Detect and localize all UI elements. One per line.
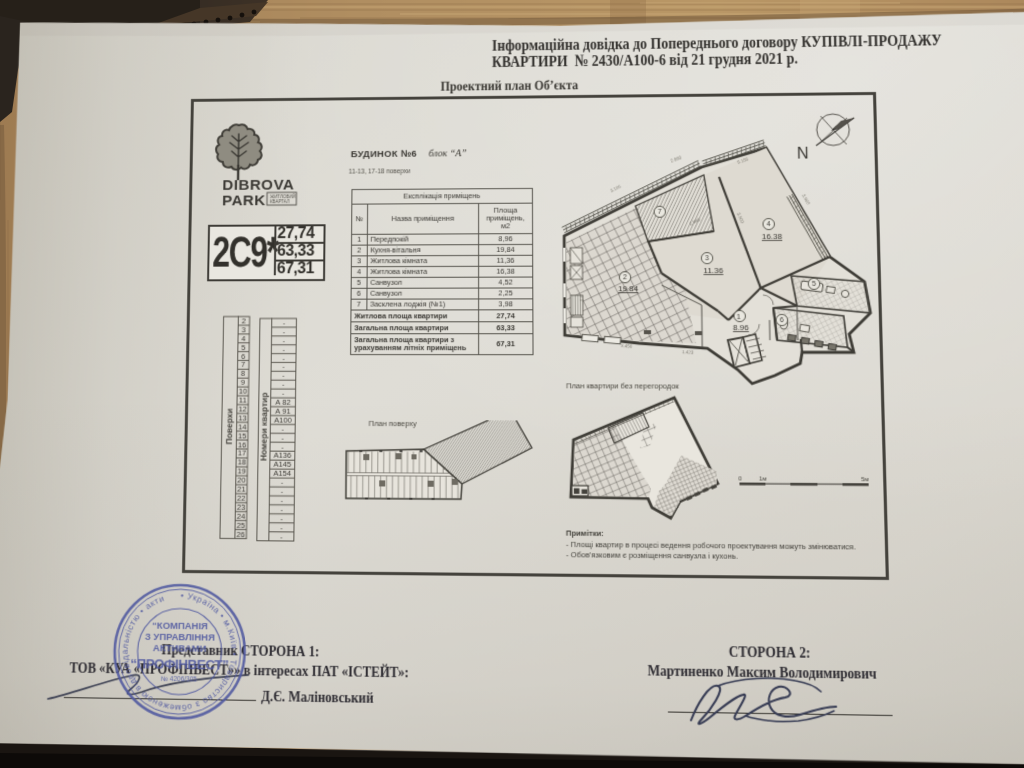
svg-text:3.960: 3.960 [801, 193, 812, 206]
svg-text:-: - [283, 319, 286, 327]
svg-text:4: 4 [767, 221, 771, 228]
svg-text:-: - [282, 345, 285, 353]
svg-text:1.423: 1.423 [682, 349, 694, 355]
svg-text:-: - [283, 337, 286, 345]
svg-text:16: 16 [238, 441, 247, 450]
svg-text:19: 19 [237, 467, 246, 476]
svg-text:“ПРОФІНВЕСТ”: “ПРОФІНВЕСТ” [130, 656, 228, 673]
svg-text:8.96: 8.96 [733, 323, 749, 333]
svg-text:№ 4206/305: № 4206/305 [161, 676, 198, 684]
svg-text:PARK: PARK [222, 193, 266, 208]
svg-text:-: - [282, 372, 285, 380]
svg-text:0: 0 [738, 476, 742, 483]
svg-text:А154: А154 [273, 470, 291, 479]
svg-text:-: - [282, 363, 285, 371]
svg-text:А 82: А 82 [275, 398, 291, 407]
svg-text:4: 4 [241, 335, 245, 343]
svg-text:7: 7 [658, 209, 662, 216]
svg-text:16.38: 16.38 [762, 232, 783, 242]
svg-text:-: - [282, 381, 285, 389]
svg-text:-: - [283, 328, 286, 336]
svg-text:-: - [281, 434, 284, 443]
svg-text:23: 23 [237, 503, 246, 512]
svg-text:“КОМПАНІЯ: “КОМПАНІЯ [152, 620, 208, 632]
svg-text:-: - [280, 533, 283, 542]
svg-text:-: - [281, 425, 284, 434]
svg-text:КВАРТАЛ: КВАРТАЛ [270, 199, 290, 204]
svg-text:-: - [280, 524, 283, 533]
svg-text:1м: 1м [759, 476, 767, 483]
svg-text:11.36: 11.36 [703, 266, 723, 276]
svg-text:3.450: 3.450 [621, 343, 633, 349]
svg-text:N: N [797, 145, 809, 163]
svg-text:-: - [280, 515, 283, 524]
svg-text:З УПРАВЛІННЯ: З УПРАВЛІННЯ [145, 631, 215, 643]
svg-text:20: 20 [237, 476, 246, 485]
svg-text:АКТИВАМИ: АКТИВАМИ [153, 642, 207, 654]
svg-text:17: 17 [238, 450, 247, 459]
svg-text:Номери квартир: Номери квартир [259, 392, 269, 461]
svg-text:6: 6 [241, 352, 245, 360]
svg-text:А 91: А 91 [275, 407, 291, 416]
svg-text:3: 3 [705, 255, 709, 262]
svg-text:2: 2 [623, 274, 627, 281]
svg-text:А136: А136 [274, 452, 292, 461]
svg-text:6: 6 [780, 317, 785, 325]
svg-text:-: - [282, 354, 285, 362]
svg-text:1: 1 [737, 314, 741, 321]
svg-text:-: - [281, 443, 284, 452]
svg-text:-: - [281, 488, 284, 497]
svg-text:18: 18 [237, 458, 246, 467]
svg-text:-: - [282, 390, 285, 398]
svg-text:15: 15 [238, 432, 247, 441]
svg-text:14: 14 [238, 423, 247, 432]
svg-text:7: 7 [241, 361, 245, 369]
svg-text:2: 2 [242, 317, 246, 325]
svg-text:10: 10 [239, 387, 248, 395]
svg-text:5: 5 [241, 343, 245, 351]
svg-text:21: 21 [237, 485, 246, 494]
svg-text:DIBROVA: DIBROVA [222, 177, 294, 194]
svg-text:8: 8 [241, 370, 245, 378]
svg-text:12: 12 [238, 405, 247, 414]
svg-text:5м: 5м [861, 477, 869, 484]
svg-text:19.84: 19.84 [618, 284, 638, 294]
svg-text:13: 13 [238, 414, 247, 423]
svg-text:2.980: 2.980 [670, 154, 683, 163]
svg-text:24: 24 [237, 512, 246, 521]
svg-text:-: - [281, 479, 284, 488]
svg-text:9: 9 [241, 379, 245, 387]
svg-text:11: 11 [239, 396, 247, 404]
svg-text:-: - [281, 497, 284, 506]
svg-text:-: - [280, 506, 283, 515]
svg-text:22: 22 [237, 494, 246, 503]
svg-text:3: 3 [242, 326, 246, 334]
svg-text:3.105: 3.105 [609, 183, 622, 193]
svg-text:25: 25 [236, 521, 245, 530]
svg-text:А100: А100 [274, 416, 292, 425]
svg-text:26: 26 [236, 530, 245, 539]
svg-text:А145: А145 [273, 461, 291, 470]
svg-text:5: 5 [812, 281, 817, 288]
svg-text:Поверхи: Поверхи [225, 408, 235, 444]
svg-text:2.1: 2.1 [579, 295, 584, 302]
